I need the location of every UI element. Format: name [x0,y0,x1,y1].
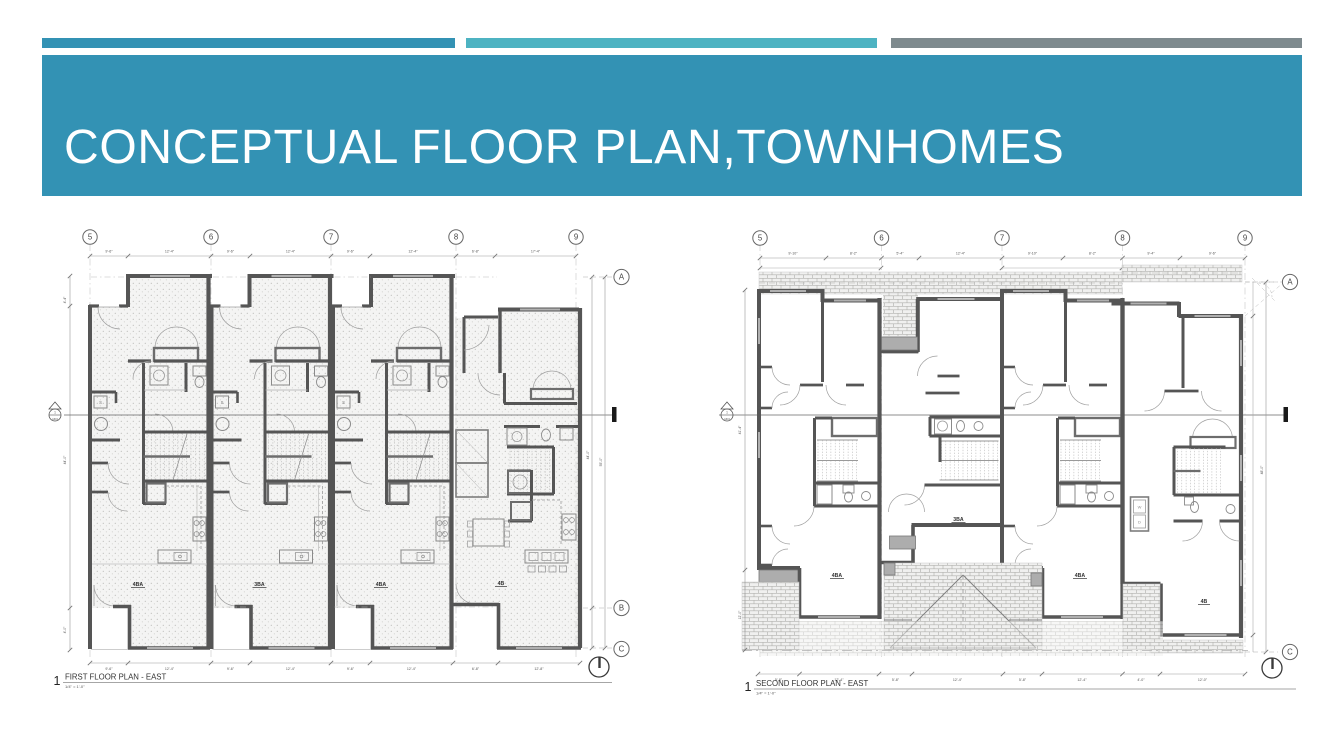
svg-text:12'-4": 12'-4" [165,667,175,671]
svg-text:C: C [1287,648,1293,657]
svg-text:4B: 4B [498,581,505,587]
svg-text:5: 5 [88,233,93,242]
svg-text:9'-10": 9'-10" [788,252,798,256]
svg-text:6'-8": 6'-8" [472,667,480,671]
svg-text:44'-0": 44'-0" [586,450,590,459]
svg-text:6: 6 [209,233,213,242]
svg-text:A601: A601 [724,417,731,421]
svg-text:12'-4": 12'-4" [956,252,966,256]
svg-text:4B: 4B [1201,599,1208,605]
svg-text:48'-0": 48'-0" [1260,465,1264,474]
svg-text:A: A [619,273,625,282]
svg-text:4'-4": 4'-4" [63,296,67,304]
svg-text:S: S [221,400,224,405]
svg-text:3BA: 3BA [953,517,964,523]
svg-text:4'-0": 4'-0" [63,626,67,634]
svg-text:B: B [619,604,624,613]
svg-text:12'-4": 12'-4" [953,678,963,682]
svg-text:1: 1 [54,674,61,688]
svg-text:12'-4": 12'-4" [1077,678,1087,682]
svg-text:1/4" = 1'-0": 1/4" = 1'-0" [65,684,85,689]
svg-text:1: 1 [54,411,56,415]
svg-text:4BA: 4BA [376,582,387,588]
svg-text:1: 1 [745,680,752,694]
svg-text:12'-0": 12'-0" [738,610,742,619]
svg-text:W: W [1138,505,1142,510]
svg-text:4BA: 4BA [133,582,144,588]
svg-text:1/4" = 1'-0": 1/4" = 1'-0" [756,691,776,696]
svg-text:4BA: 4BA [832,573,843,579]
svg-text:12'-4": 12'-4" [286,667,296,671]
svg-text:9'-4": 9'-4" [1147,252,1155,256]
svg-text:12'-4": 12'-4" [286,250,296,254]
svg-text:8'-2": 8'-2" [850,252,858,256]
svg-text:7: 7 [1000,234,1004,243]
svg-text:12'-4": 12'-4" [165,250,175,254]
svg-text:5'-4": 5'-4" [896,252,904,256]
svg-text:C: C [619,645,625,654]
svg-text:S: S [342,400,345,405]
svg-text:SECOND FLOOR PLAN - EAST: SECOND FLOOR PLAN - EAST [756,679,868,688]
svg-text:4'-0": 4'-0" [1137,678,1145,682]
svg-text:9'-6": 9'-6" [1209,252,1217,256]
svg-text:A: A [1287,278,1293,287]
svg-text:8: 8 [454,233,458,242]
svg-text:9'-6": 9'-6" [105,667,113,671]
svg-text:8: 8 [1120,234,1124,243]
svg-text:5'-8": 5'-8" [892,678,900,682]
svg-text:12'-0": 12'-0" [1198,678,1208,682]
svg-text:6'-8": 6'-8" [472,250,480,254]
svg-text:S: S [99,400,102,405]
svg-text:4BA: 4BA [1075,573,1086,579]
svg-text:3BA: 3BA [254,582,265,588]
svg-text:55'-0": 55'-0" [599,457,603,466]
svg-text:6: 6 [879,234,883,243]
svg-text:9'-6": 9'-6" [105,250,113,254]
svg-text:12'-8": 12'-8" [534,667,544,671]
svg-text:9: 9 [1243,234,1247,243]
svg-text:12'-4": 12'-4" [407,667,417,671]
svg-text:9'-6": 9'-6" [347,250,355,254]
svg-text:FIRST FLOOR PLAN - EAST: FIRST FLOOR PLAN - EAST [65,673,166,682]
svg-text:44'-0": 44'-0" [63,455,67,464]
svg-text:1: 1 [726,411,728,415]
svg-text:9'-6": 9'-6" [227,250,235,254]
svg-text:12'-4": 12'-4" [408,250,418,254]
svg-text:9'-6": 9'-6" [347,667,355,671]
svg-text:9'-6": 9'-6" [227,667,235,671]
svg-text:41'-4": 41'-4" [738,425,742,434]
svg-text:9'-10": 9'-10" [1028,252,1038,256]
svg-text:17'-4": 17'-4" [531,250,541,254]
svg-text:9: 9 [574,233,578,242]
svg-text:A601: A601 [52,417,59,421]
svg-text:5'-8": 5'-8" [1019,678,1027,682]
svg-text:D: D [1138,520,1141,525]
svg-text:8'-2": 8'-2" [1089,252,1097,256]
svg-text:7: 7 [329,233,333,242]
svg-text:5: 5 [758,234,763,243]
